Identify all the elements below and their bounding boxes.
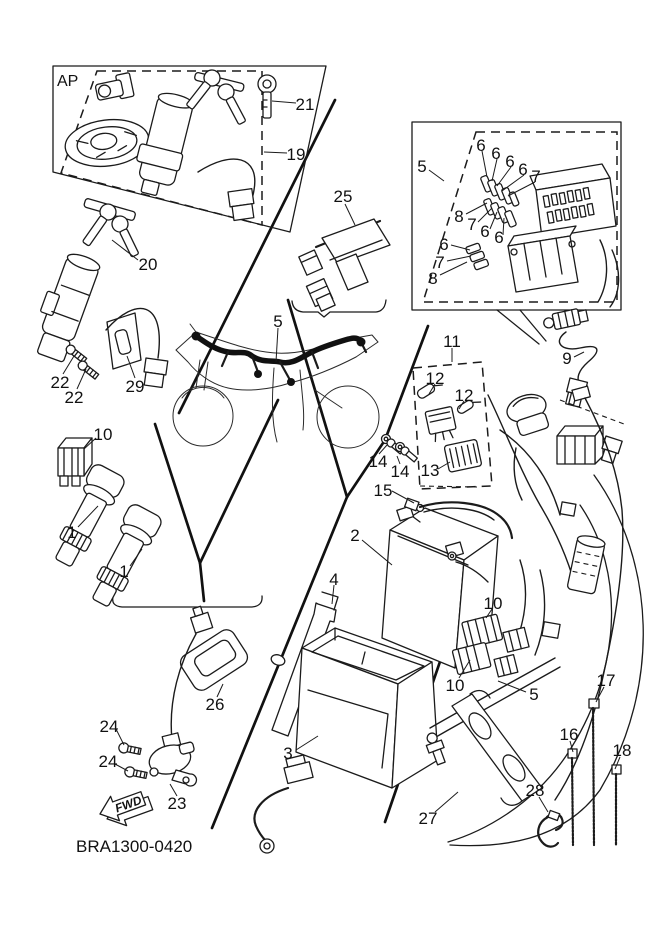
switch-cylinder-part (26, 249, 101, 364)
callout-11[interactable]: 11 (443, 332, 461, 351)
diagram-code-label: BRA1300-0420 (76, 837, 192, 856)
callout-25[interactable]: 25 (334, 187, 353, 206)
cable-tie-17 (589, 699, 599, 845)
bracket-29-part (107, 313, 141, 369)
callout-6-2[interactable]: 6 (491, 144, 500, 163)
callout-1-b[interactable]: 1 (119, 562, 128, 581)
callout-7-2[interactable]: 7 (467, 215, 476, 234)
callout-6-6[interactable]: 6 (494, 228, 503, 247)
connector-19 (228, 189, 256, 221)
callout-14-a[interactable]: 14 (369, 452, 388, 471)
cover-26-part (177, 626, 251, 693)
callout-15[interactable]: 15 (374, 481, 393, 500)
callout-23[interactable]: 23 (168, 794, 187, 813)
callout-6-1[interactable]: 6 (476, 136, 485, 155)
callout-28[interactable]: 28 (526, 781, 545, 800)
brace-dividers (113, 300, 386, 607)
fuel-pump-part (567, 534, 606, 595)
ap-box-label: AP (57, 73, 78, 90)
callout-20[interactable]: 20 (139, 255, 158, 274)
callout-5-harness[interactable]: 5 (273, 312, 282, 331)
callout-13[interactable]: 13 (421, 461, 440, 480)
cable-tie-18 (612, 765, 621, 845)
relay-mate-b (494, 655, 518, 677)
callout-29[interactable]: 29 (126, 377, 145, 396)
callout-17[interactable]: 17 (597, 671, 616, 690)
relay-box-body (508, 226, 578, 292)
bolt-24-a (118, 742, 142, 756)
parts-diagram-page: FWD (0, 0, 661, 935)
bolt-24-b (124, 766, 148, 780)
callout-24-b[interactable]: 24 (99, 752, 118, 771)
connector-26 (188, 605, 213, 633)
clamp-28-part (538, 810, 562, 846)
parts-diagram-canvas: FWD (0, 0, 661, 935)
callout-6-7[interactable]: 6 (439, 235, 448, 254)
callout-16[interactable]: 16 (560, 725, 579, 744)
callout-5-box[interactable]: 5 (417, 157, 426, 176)
relay-mate-a (503, 627, 529, 652)
callout-8-2[interactable]: 8 (428, 269, 437, 288)
callout-14-b[interactable]: 14 (391, 462, 410, 481)
bolt-22-b (76, 359, 99, 380)
callout-6-4[interactable]: 6 (518, 160, 527, 179)
callout-10-d[interactable]: 10 (446, 676, 465, 695)
callout-27[interactable]: 27 (419, 809, 438, 828)
fuel-cap-part (63, 115, 152, 171)
callout-1-a[interactable]: 1 (67, 523, 76, 542)
relay-13-part (444, 439, 482, 472)
callout-6-3[interactable]: 6 (505, 152, 514, 171)
callout-22-b[interactable]: 22 (65, 388, 84, 407)
callout-12-b[interactable]: 12 (455, 386, 474, 405)
lock-cylinder-part (94, 73, 134, 104)
callout-21[interactable]: 21 (296, 95, 315, 114)
handlebar-switch-part (503, 390, 553, 439)
sensor-23-part (144, 730, 199, 786)
callout-7-1[interactable]: 7 (531, 167, 540, 186)
key-blank-part (258, 75, 276, 118)
callout-3[interactable]: 3 (283, 744, 292, 763)
callout-9[interactable]: 9 (562, 349, 571, 368)
fwd-arrow: FWD (96, 784, 155, 832)
fuse-box-detail (412, 122, 621, 344)
callout-4[interactable]: 4 (329, 570, 338, 589)
callout-8-1[interactable]: 8 (454, 207, 463, 226)
relay-on-harness (557, 426, 603, 464)
fwd-arrow-label: FWD (113, 793, 144, 816)
connector-29 (142, 358, 168, 388)
callout-12-a[interactable]: 12 (426, 369, 445, 388)
ground-lead (254, 754, 313, 853)
callout-5-low[interactable]: 5 (529, 685, 538, 704)
callout-6-5[interactable]: 6 (480, 222, 489, 241)
callout-10-c[interactable]: 10 (484, 594, 503, 613)
key-set-icon (183, 67, 250, 127)
relay-assembly-25 (294, 219, 390, 311)
main-switch-assembly (26, 198, 167, 388)
switch-body-part (425, 406, 458, 442)
callout-24-a[interactable]: 24 (100, 717, 119, 736)
callout-2[interactable]: 2 (350, 526, 359, 545)
callout-18[interactable]: 18 (613, 741, 632, 760)
callout-19[interactable]: 19 (287, 145, 306, 164)
callout-10-a[interactable]: 10 (94, 425, 113, 444)
callout-26[interactable]: 26 (206, 695, 225, 714)
